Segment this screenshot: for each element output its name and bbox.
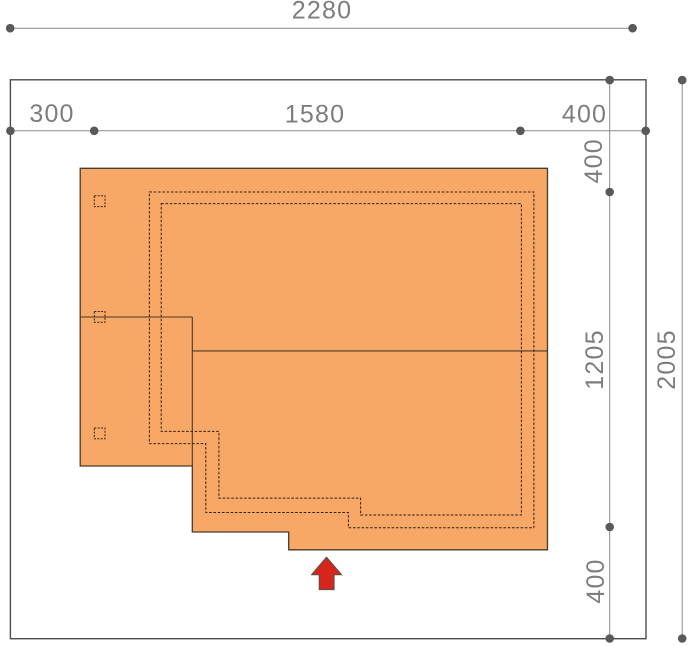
- svg-text:2005: 2005: [653, 329, 681, 389]
- svg-text:400: 400: [580, 138, 608, 183]
- svg-text:2280: 2280: [292, 0, 352, 25]
- svg-text:1205: 1205: [581, 329, 609, 389]
- svg-text:400: 400: [562, 101, 607, 129]
- svg-text:400: 400: [582, 558, 610, 603]
- svg-text:300: 300: [29, 100, 74, 128]
- svg-text:1580: 1580: [285, 101, 345, 129]
